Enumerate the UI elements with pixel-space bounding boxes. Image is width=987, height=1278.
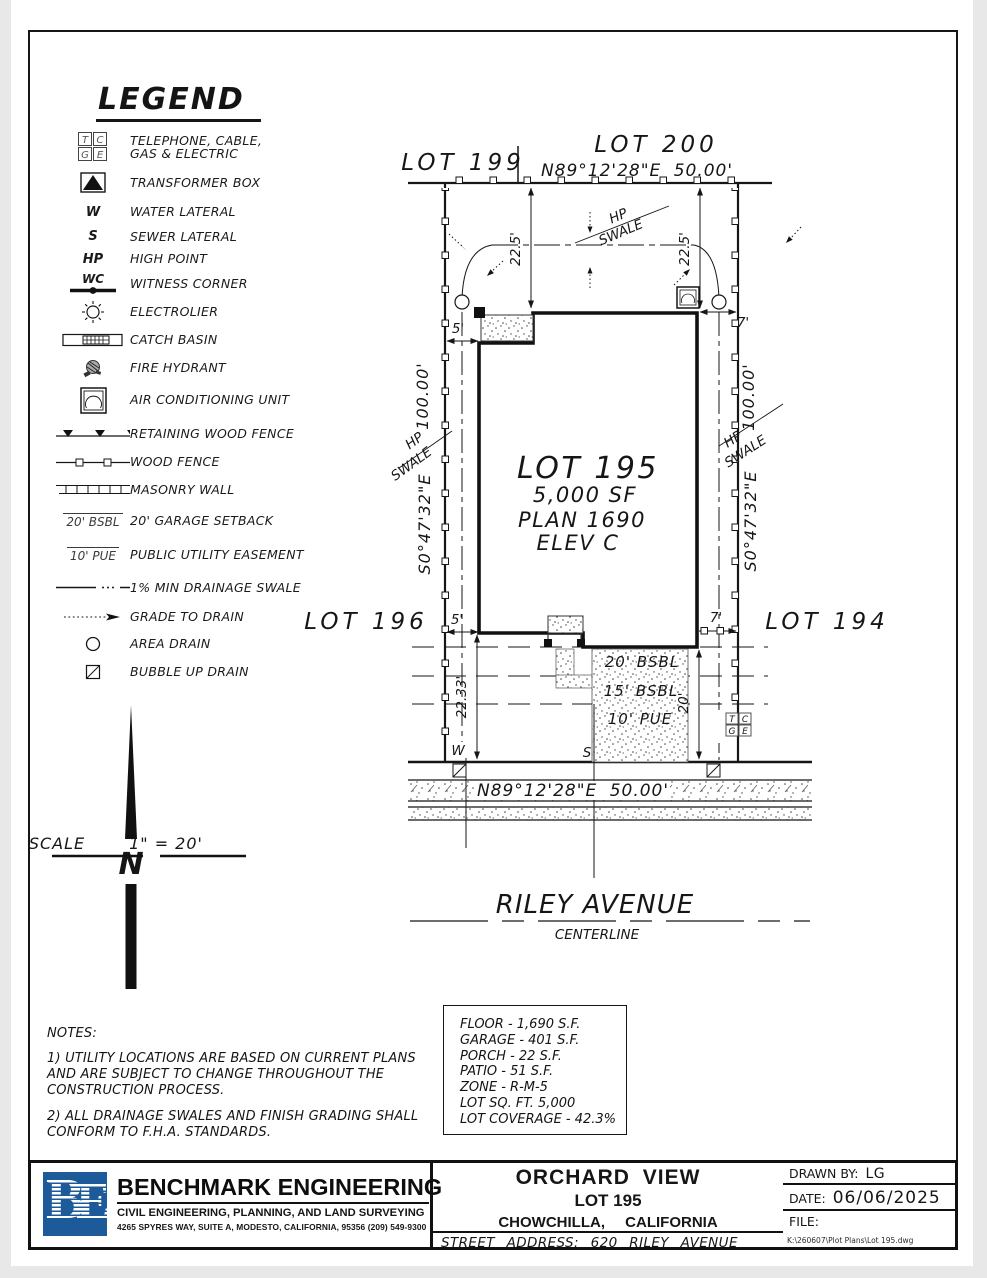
legend-item-bubble-up: BUBBLE UP DRAIN [56, 657, 386, 687]
file-label: FILE: [789, 1214, 819, 1229]
firm-name: BENCHMARK ENGINEERING [117, 1174, 429, 1204]
tcge-e: E [742, 727, 748, 737]
area-drain-left [455, 295, 469, 309]
project-city: CHOWCHILLA, CALIFORNIA [433, 1214, 783, 1231]
house-plan-label: PLAN 1690 [518, 508, 646, 532]
house-setback-label: 15' BSBL [604, 682, 678, 700]
tcge-g: G [729, 727, 736, 737]
plot-plan-sheet: { "colors": {"ink": "#161616", "gray_lab… [0, 0, 987, 1278]
title-block-firm: B E BENCHMARK ENGINEERING CIVIL ENGINEER… [31, 1163, 433, 1247]
sewer-lateral-label: S [583, 745, 592, 761]
right-distance: 100.00' [739, 363, 758, 430]
legend-item-ac-unit: AIR CONDITIONING UNIT [56, 382, 386, 418]
high-point-symbol: HP [83, 252, 103, 267]
legend-item-grade-to-drain: GRADE TO DRAIN [56, 603, 386, 631]
masonry-wall-icon [56, 483, 130, 496]
svg-text:G: G [81, 150, 89, 161]
transformer-box-icon [80, 172, 106, 194]
firm-tagline: CIVIL ENGINEERING, PLANNING, AND LAND SU… [117, 1207, 429, 1219]
notes: NOTES: 1) UTILITY LOCATIONS ARE BASED ON… [47, 1026, 422, 1141]
electrolier-icon [80, 299, 106, 325]
centerline-label: CENTERLINE [555, 927, 640, 943]
lot-194-label: LOT 194 [765, 609, 888, 635]
scale-value: 1" = 20' [129, 834, 203, 853]
title-block: B E BENCHMARK ENGINEERING CIVIL ENGINEER… [28, 1160, 958, 1250]
ac-unit-symbol [677, 287, 699, 308]
house-elev-label: ELEV C [537, 531, 620, 555]
file-row: FILE: [783, 1211, 955, 1236]
title-block-project: ORCHARD VIEW LOT 195 CHOWCHILLA, CALIFOR… [433, 1163, 783, 1247]
wood-fence-icon [56, 457, 130, 468]
garage-setback-label: 20' BSBL [605, 653, 679, 671]
witness-corner-icon: WC [70, 272, 116, 295]
drawn-by-row: DRAWN BY: LG [783, 1163, 955, 1185]
date-row: DATE: 06/06/2025 [783, 1185, 955, 1211]
dim-side-left-front: 5' [451, 612, 463, 628]
street-name: RILEY AVENUE [496, 890, 694, 920]
right-bearing: S0°47'32"E [741, 471, 760, 572]
stat-floor: FLOOR - 1,690 S.F. [460, 1017, 626, 1033]
logo-stripes [43, 1172, 107, 1236]
legend-item-retaining-fence: RETAINING WOOD FENCE [56, 418, 386, 449]
legend-item-tcge: T C G E TELEPHONE, CABLE,GAS & ELECTRIC [56, 128, 386, 166]
front-bearing: N89°12'28"E 50.00' [477, 781, 669, 801]
dim-side-left-rear: 5' [452, 321, 464, 337]
bsbl-symbol: 20' BSBL [63, 513, 122, 529]
legend-item-water: W WATER LATERAL [56, 199, 386, 225]
stat-patio: PATIO - 51 S.F. [460, 1064, 626, 1080]
stat-coverage: LOT COVERAGE - 42.3% [460, 1112, 626, 1128]
legend-item-masonry: MASONRY WALL [56, 475, 386, 504]
house-area-label: 5,000 SF [533, 483, 637, 507]
left-bearing: S0°47'32"E [415, 474, 434, 575]
rear-bearing: N89°12'28"E 50.00' [541, 161, 733, 181]
legend-item-pue: 10' PUE PUBLIC UTILITY EASEMENT [56, 538, 386, 572]
legend-item-wood-fence: WOOD FENCE [56, 449, 386, 475]
svg-text:C: C [97, 135, 104, 146]
project-lot: LOT 195 [433, 1191, 783, 1211]
benchmark-logo: B E [43, 1172, 107, 1236]
house-lot-label: LOT 195 [517, 451, 659, 486]
legend-item-fire-hydrant: FIRE HYDRANT [56, 353, 386, 382]
grade-to-drain-icon [62, 612, 124, 622]
dim-side-right-rear: 7' [737, 315, 749, 331]
water-symbol: W [86, 205, 100, 220]
pue-label: 10' PUE [608, 710, 672, 728]
file-path: K:\260607\Plot Plans\Lot 195.dwg [783, 1236, 955, 1247]
date-value: 06/06/2025 [833, 1188, 941, 1208]
legend-title: LEGEND [96, 82, 261, 122]
svg-text:T: T [82, 135, 89, 146]
lot-stats-box: FLOOR - 1,690 S.F. GARAGE - 401 S.F. POR… [443, 1005, 627, 1135]
area-drain-right [712, 295, 726, 309]
legend-item-garage-setback: 20' BSBL 20' GARAGE SETBACK [56, 504, 386, 538]
lot-199-label: LOT 199 [401, 150, 524, 176]
patio [481, 315, 533, 341]
legend-item-transformer: TRANSFORMER BOX [56, 166, 386, 199]
notes-heading: NOTES: [47, 1026, 422, 1042]
dim-rear-right: 22.5' [677, 232, 693, 266]
stat-porch: PORCH - 22 S.F. [460, 1049, 626, 1065]
retaining-wood-fence-icon [56, 428, 130, 440]
catch-basin-icon [62, 332, 124, 348]
fire-hydrant-icon [81, 358, 105, 378]
street-address: STREET ADDRESS: 620 RILEY AVENUE [433, 1231, 783, 1252]
water-lateral-label: W [451, 743, 465, 759]
swale-label-top: HP SWALE [590, 201, 646, 249]
legend-item-sewer: S SEWER LATERAL [56, 225, 386, 248]
legend-item-swale: 1% MIN DRAINAGE SWALE [56, 572, 386, 603]
dim-front-right: 20' [676, 693, 692, 714]
pue-symbol: 10' PUE [67, 547, 119, 563]
legend-item-highpoint: HP HIGH POINT [56, 248, 386, 270]
dim-rear-left: 22.5' [508, 232, 524, 266]
tcge-c: C [742, 715, 749, 725]
scale-label: SCALE [29, 834, 85, 853]
firm-address: 4265 SPYRES WAY, SUITE A, MODESTO, CALIF… [117, 1222, 429, 1232]
left-distance: 100.00' [413, 362, 432, 429]
area-drain-icon [84, 635, 102, 653]
porch [544, 616, 585, 647]
walkway [556, 649, 593, 688]
stat-lot-sqft: LOT SQ. FT. 5,000 [460, 1096, 626, 1112]
bubble-up-drain-symbols [453, 764, 720, 777]
legend-item-catch-basin: CATCH BASIN [56, 327, 386, 353]
dim-front-left: 22.33' [454, 676, 470, 718]
drawn-by-value: LG [865, 1166, 885, 1182]
stat-garage: GARAGE - 401 S.F. [460, 1033, 626, 1049]
project-name: ORCHARD VIEW [433, 1166, 783, 1190]
legend: T C G E TELEPHONE, CABLE,GAS & ELECTRIC … [56, 128, 386, 687]
house-corner-marker [474, 307, 485, 318]
tcge-icon: T C G E [77, 131, 109, 163]
drawn-by-label: DRAWN BY: [789, 1166, 858, 1181]
sewer-symbol: S [88, 229, 97, 244]
legend-item-witness-corner: WC WITNESS CORNER [56, 270, 386, 297]
ac-unit-icon [80, 387, 107, 414]
bubble-up-drain-icon [85, 664, 102, 681]
legend-item-electrolier: ELECTROLIER [56, 297, 386, 327]
date-label: DATE: [789, 1191, 826, 1206]
dim-side-right-front: 7' [710, 610, 722, 626]
drainage-swale-icon [56, 584, 130, 591]
legend-item-area-drain: AREA DRAIN [56, 631, 386, 657]
lot-200-label: LOT 200 [594, 132, 717, 158]
title-block-meta: DRAWN BY: LG DATE: 06/06/2025 FILE: K:\2… [783, 1163, 955, 1247]
svg-text:E: E [97, 150, 104, 161]
stat-zone: ZONE - R-M-5 [460, 1080, 626, 1096]
